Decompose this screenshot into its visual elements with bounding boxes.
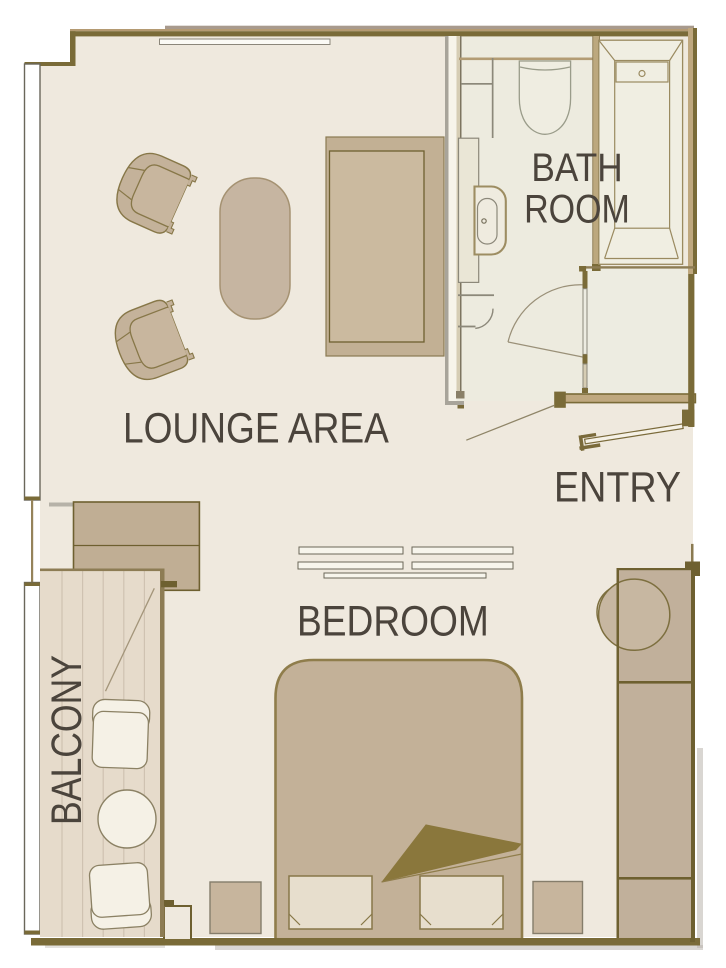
svg-text:BATH: BATH bbox=[531, 145, 622, 190]
svg-text:BEDROOM: BEDROOM bbox=[297, 598, 489, 645]
svg-text:BALCONY: BALCONY bbox=[44, 655, 91, 825]
svg-text:LOUNGE AREA: LOUNGE AREA bbox=[123, 405, 389, 452]
svg-text:ENTRY: ENTRY bbox=[554, 463, 681, 511]
svg-text:ROOM: ROOM bbox=[524, 186, 630, 231]
